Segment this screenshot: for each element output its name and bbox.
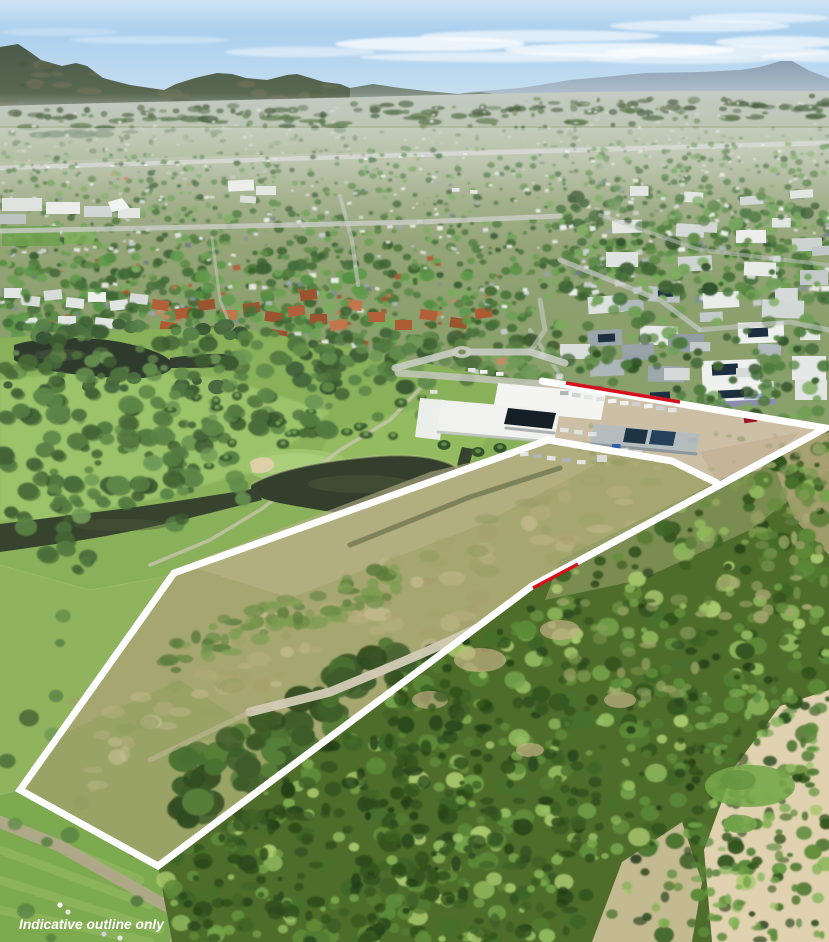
svg-text:Indicative outline only: Indicative outline only: [19, 917, 165, 932]
